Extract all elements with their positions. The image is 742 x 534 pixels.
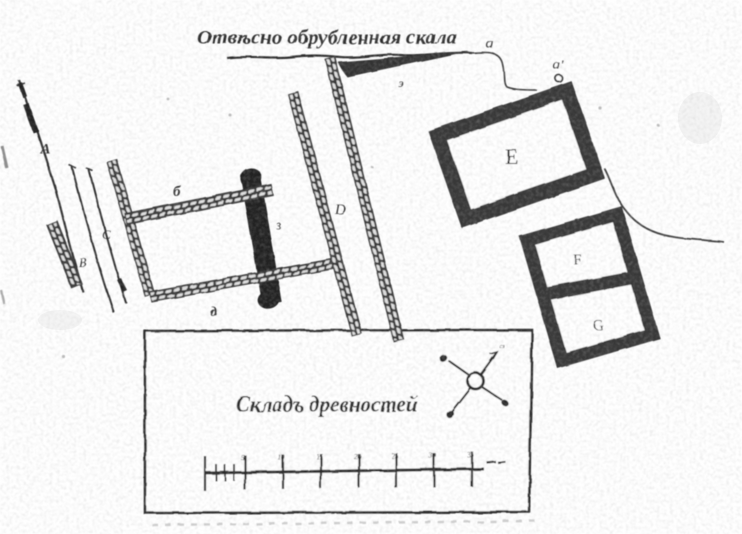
svg-text:G: G [593, 318, 604, 334]
svg-text:сз: сз [499, 342, 505, 350]
svg-text:E: E [505, 144, 518, 169]
svg-text:35: 35 [466, 451, 475, 459]
svg-text:5: 5 [241, 454, 245, 462]
svg-text:15: 15 [316, 453, 324, 461]
svg-text:а': а' [553, 58, 564, 73]
svg-text:А: А [39, 141, 50, 157]
svg-text:В: В [79, 255, 87, 270]
svg-text:э: э [398, 75, 404, 90]
svg-text:д: д [210, 305, 217, 320]
svg-text:а: а [486, 36, 494, 52]
svg-text:з: з [275, 217, 281, 232]
svg-text:20: 20 [354, 453, 362, 461]
svg-text:Складъ древностей: Складъ древностей [236, 392, 418, 417]
svg-text:С: С [102, 227, 111, 242]
svg-text:б: б [173, 184, 181, 200]
svg-text:F: F [573, 252, 581, 268]
svg-text:25: 25 [391, 452, 399, 460]
svg-text:10: 10 [278, 454, 286, 462]
svg-text:Отвѣсно обрубленная скала: Отвѣсно обрубленная скала [197, 27, 457, 49]
svg-text:D: D [334, 202, 346, 218]
svg-text:30: 30 [428, 452, 437, 460]
